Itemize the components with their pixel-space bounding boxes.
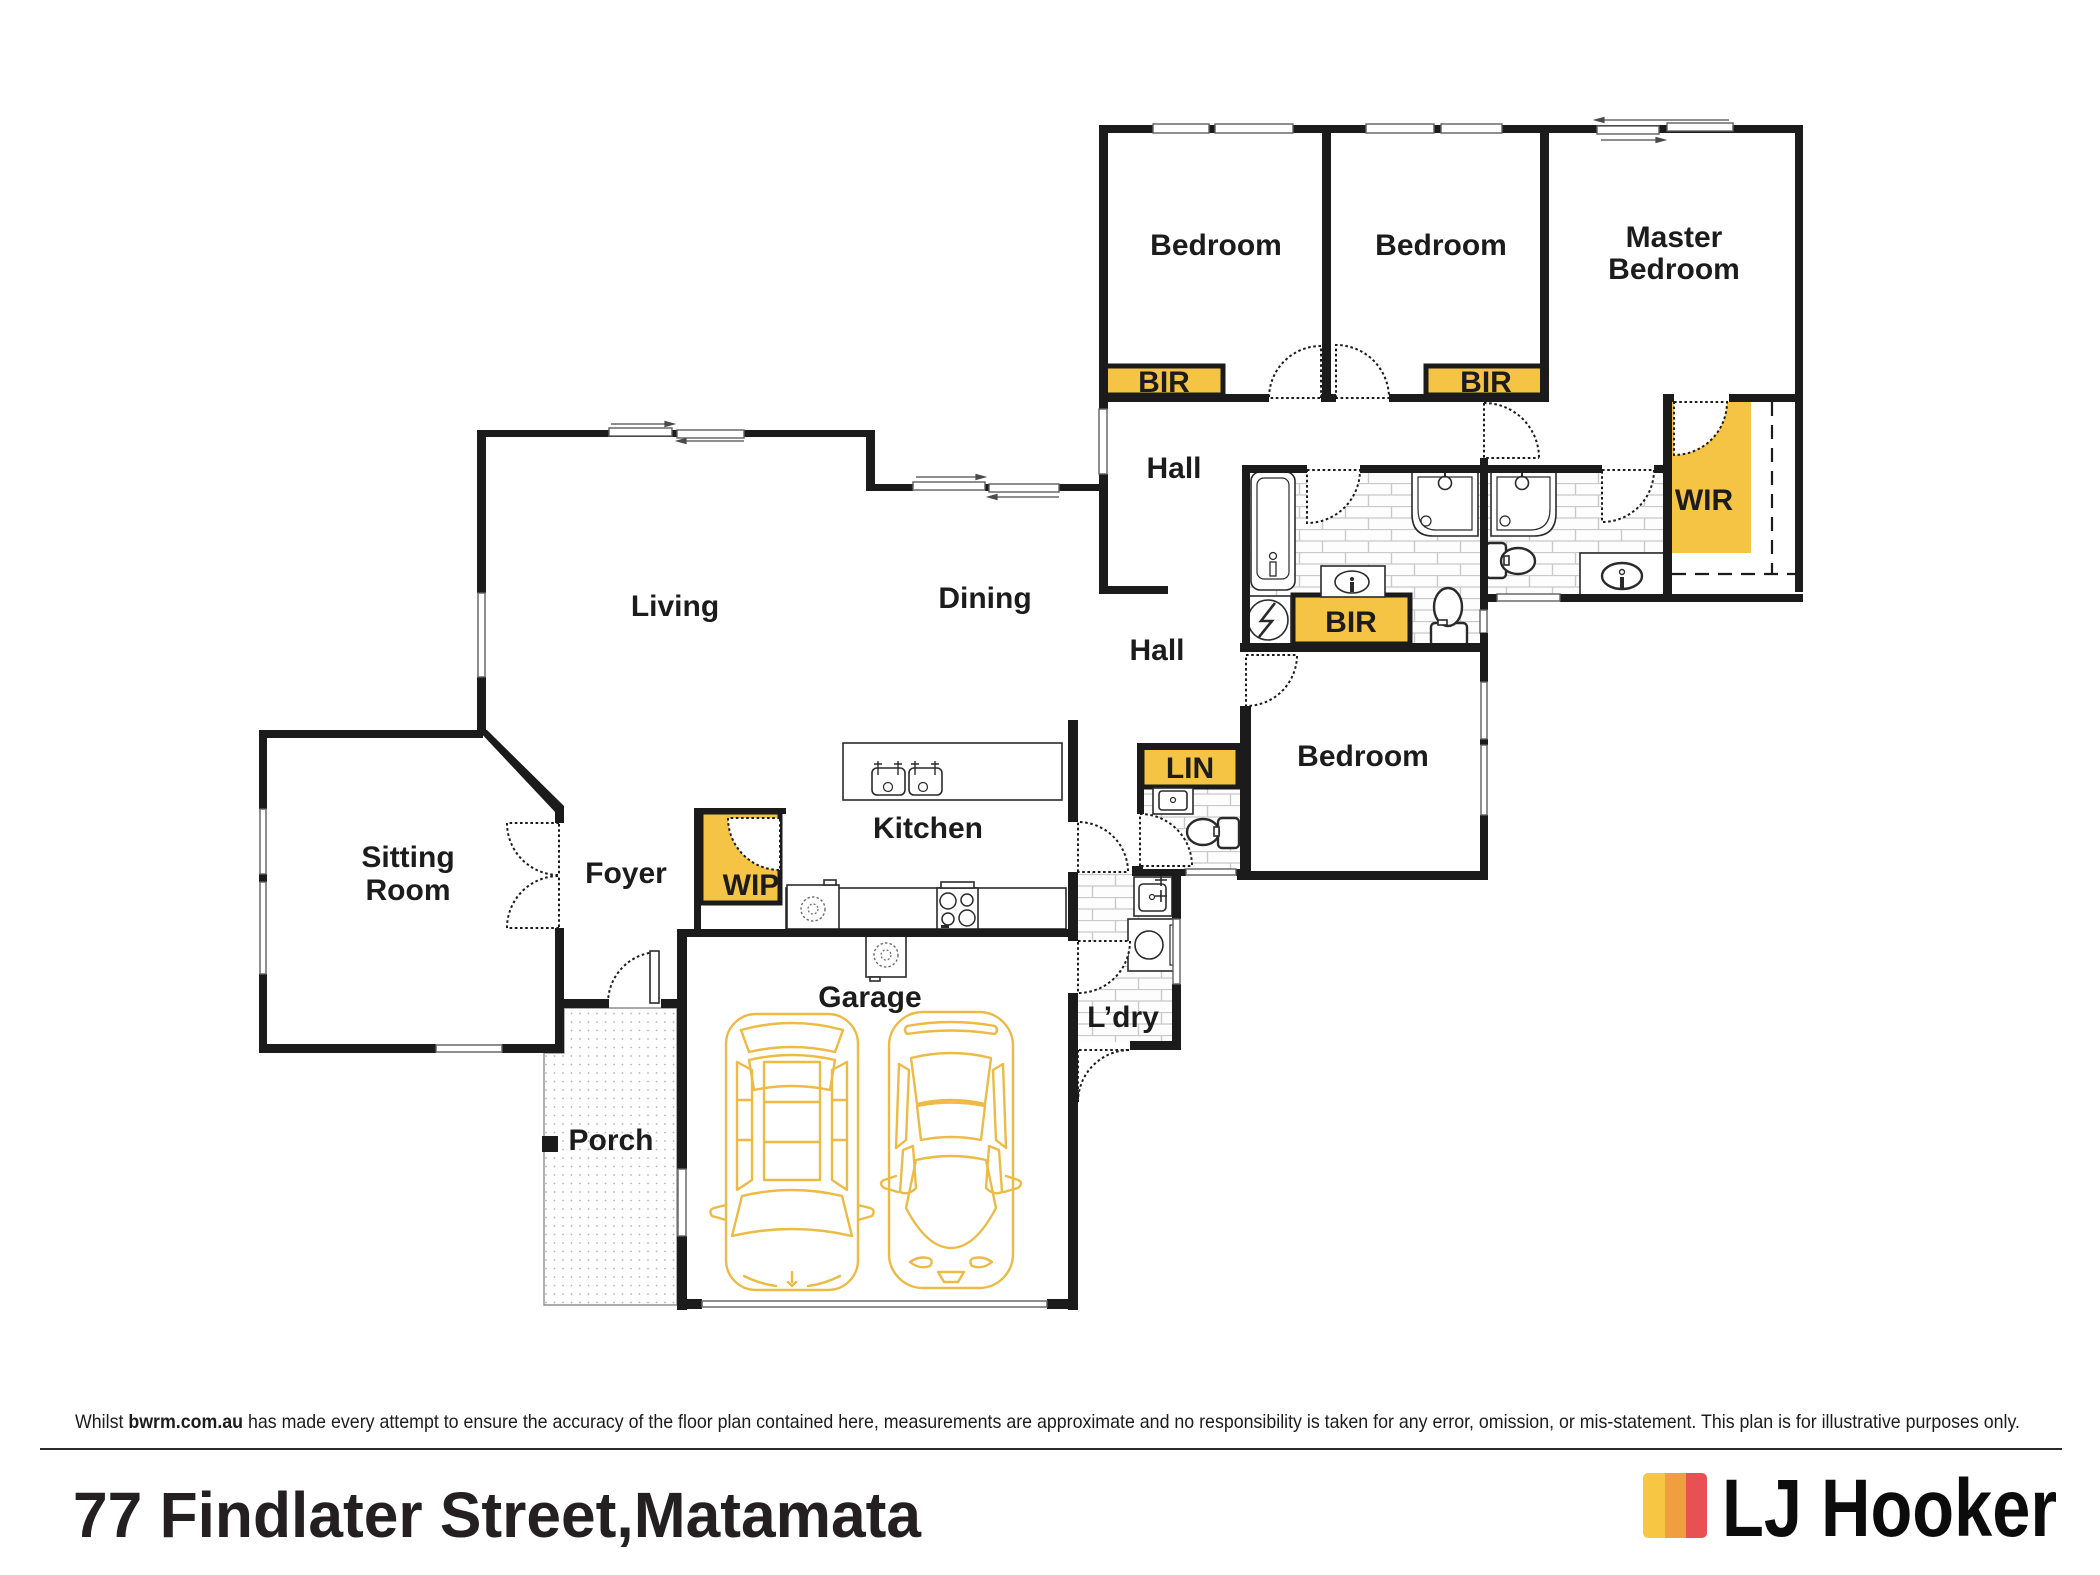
svg-text:Room: Room — [366, 874, 451, 907]
svg-text:WIR: WIR — [1675, 484, 1734, 517]
svg-text:Kitchen: Kitchen — [873, 812, 983, 845]
svg-text:L’dry: L’dry — [1087, 1001, 1159, 1034]
svg-text:Foyer: Foyer — [585, 857, 667, 890]
svg-text:Hall: Hall — [1146, 452, 1201, 485]
svg-text:Bedroom: Bedroom — [1375, 229, 1507, 262]
svg-text:LIN: LIN — [1166, 752, 1214, 785]
svg-text:77 Findlater Street,Matamata: 77 Findlater Street,Matamata — [73, 1479, 921, 1551]
svg-text:BIR: BIR — [1325, 606, 1377, 639]
svg-text:BIR: BIR — [1460, 366, 1512, 399]
svg-text:Master: Master — [1626, 221, 1723, 254]
svg-text:Garage: Garage — [818, 981, 921, 1014]
svg-text:Bedroom: Bedroom — [1608, 253, 1740, 286]
svg-text:Bedroom: Bedroom — [1297, 740, 1429, 773]
svg-text:Porch: Porch — [568, 1124, 653, 1157]
svg-text:Whilst bwrm.com.au has made ev: Whilst bwrm.com.au has made every attemp… — [75, 1411, 2020, 1433]
svg-text:WIP: WIP — [723, 869, 780, 902]
svg-text:BIR: BIR — [1138, 366, 1190, 399]
svg-text:Living: Living — [631, 590, 719, 623]
svg-text:Dining: Dining — [938, 582, 1031, 615]
svg-text:LJ Hooker: LJ Hooker — [1722, 1463, 2057, 1554]
svg-text:Sitting: Sitting — [361, 841, 454, 874]
svg-text:Hall: Hall — [1129, 634, 1184, 667]
svg-text:Bedroom: Bedroom — [1150, 229, 1282, 262]
